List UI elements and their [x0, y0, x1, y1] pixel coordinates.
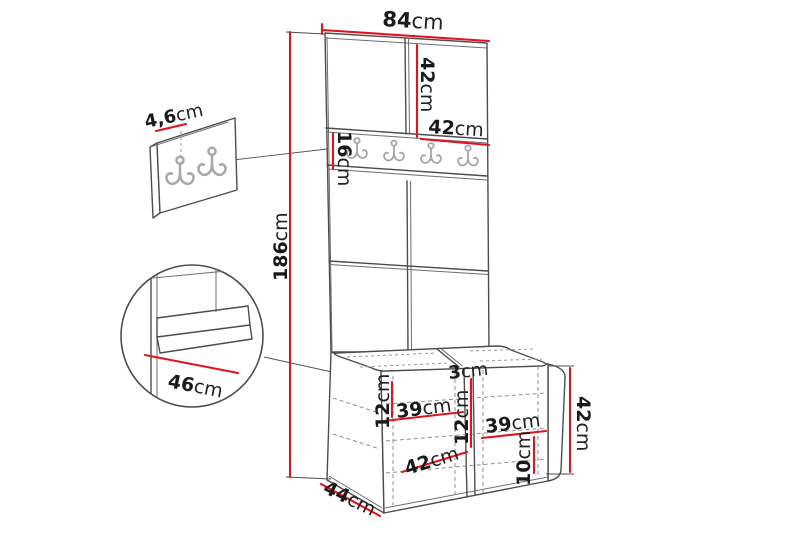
label-right-shelf-height: 12cm: [451, 390, 473, 445]
label-total-height: 186cm: [270, 212, 292, 281]
label-total-width: 84cm: [382, 7, 445, 35]
diagram-canvas: 84cm 42cm 42cm 16cm 186cm 4,6cm 46cm 3cm…: [0, 0, 800, 533]
label-top-door-height: 42cm: [416, 57, 438, 112]
label-hook-rail-height: 16cm: [333, 131, 355, 186]
label-bench-height: 42cm: [572, 396, 594, 451]
label-top-door-width: 42cm: [428, 116, 485, 141]
label-divider-thickness: 3cm: [447, 359, 489, 384]
label-bottom-shelf-height: 10cm: [513, 431, 535, 486]
dimension-diagram: 84cm 42cm 42cm 16cm 186cm 4,6cm 46cm 3cm…: [0, 0, 800, 533]
label-left-shelf-height: 12cm: [372, 374, 394, 429]
wardrobe-unit-drawing: [325, 33, 489, 352]
